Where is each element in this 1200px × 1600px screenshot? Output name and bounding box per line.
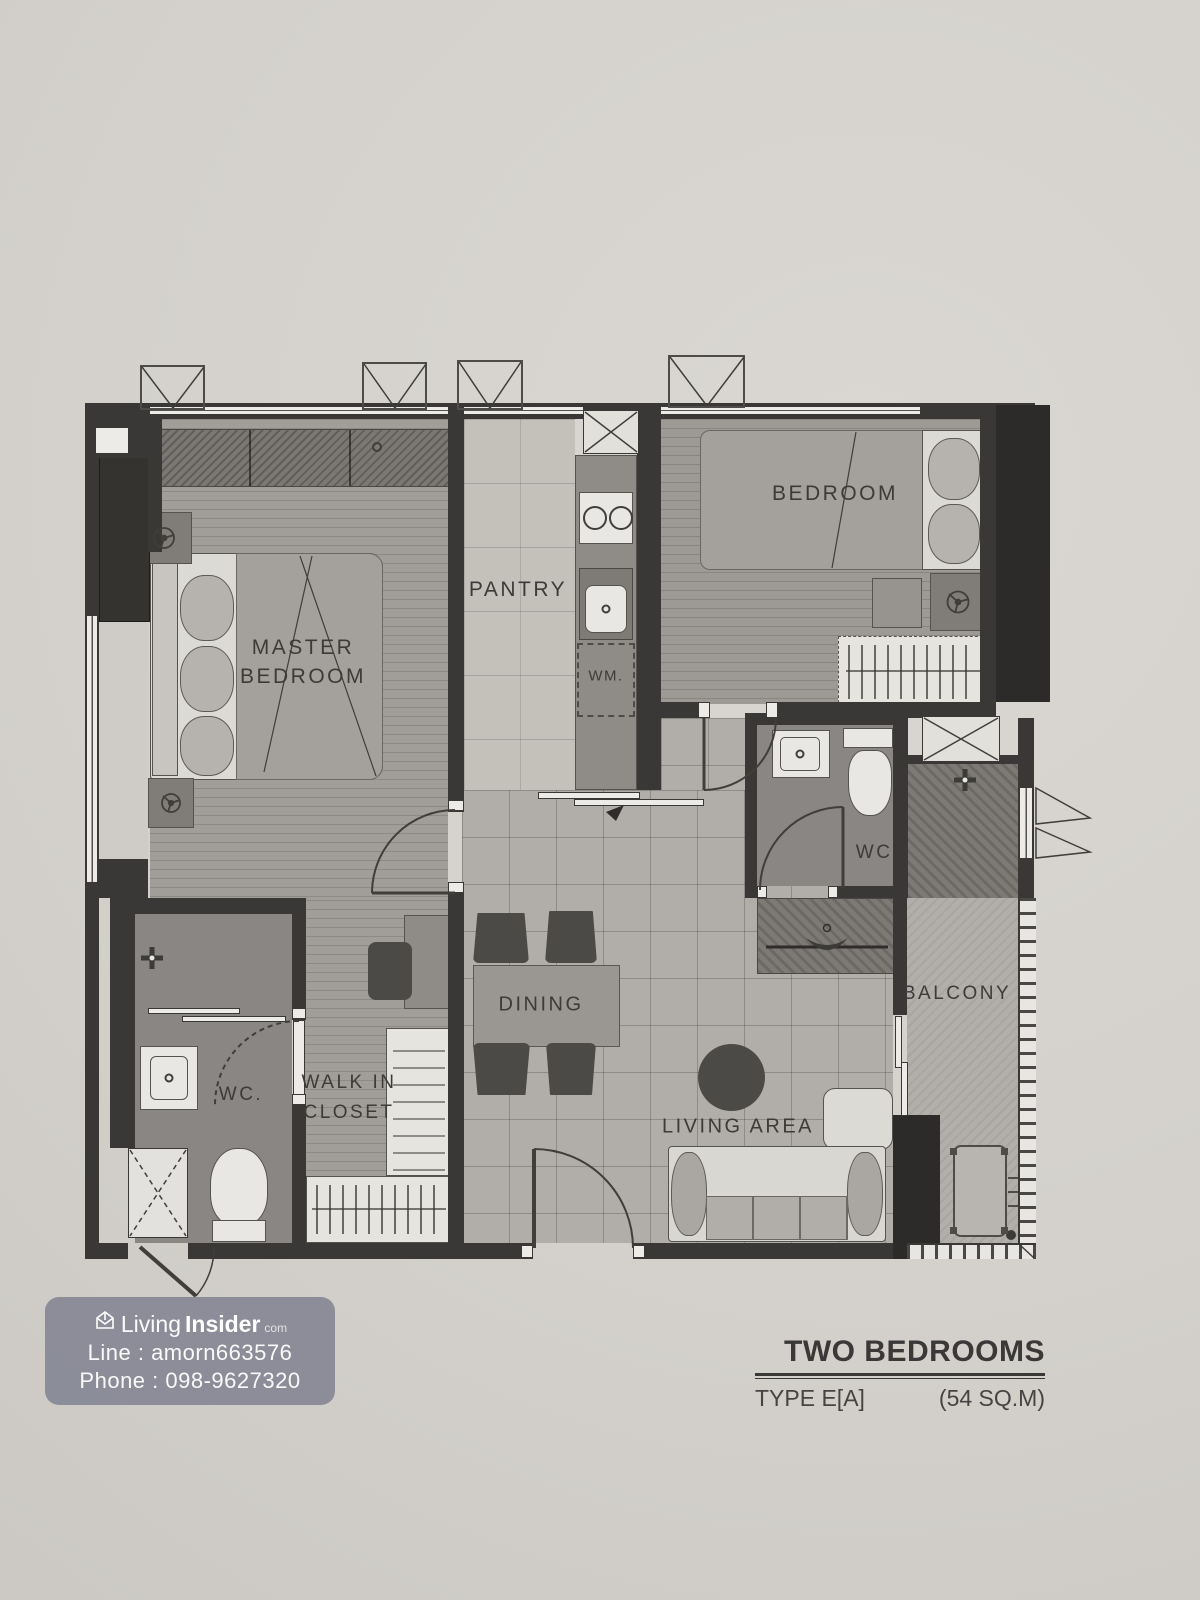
watermark-line-contact: Line : amorn663576 [88, 1340, 293, 1366]
watermark-brand: LivingInsidercom [93, 1308, 287, 1338]
unit-area: (54 SQ.M) [939, 1385, 1045, 1412]
railing-corner-diagonal [1020, 1245, 1034, 1258]
dining-label: DINING [499, 994, 584, 1017]
duct-x-mark [924, 718, 998, 760]
brand-tld: com [264, 1321, 287, 1335]
casement-v-mark [142, 367, 204, 408]
walk-in-closet-label: WALK IN CLOSET [302, 1068, 397, 1128]
fan-symbol [948, 592, 970, 614]
wardrobe-knob [373, 443, 381, 451]
louver-fins [1036, 788, 1090, 858]
pantry-label: PANTRY [469, 578, 567, 602]
wc-common-label: WC. [856, 842, 900, 864]
ledge-door-leaf [140, 1247, 196, 1296]
title-block: TWO BEDROOMS TYPE E[A] (54 SQ.M) [755, 1335, 1045, 1412]
ledge-x-mark [130, 1150, 186, 1236]
watermark-phone-contact: Phone : 098-9627320 [79, 1368, 300, 1394]
sink-drain [166, 1075, 173, 1082]
watermark-badge: LivingInsidercom Line : amorn663576 Phon… [45, 1297, 335, 1405]
entrance-door-arc [534, 1149, 633, 1248]
brand-living: Living [121, 1311, 181, 1338]
shower-symbol [954, 769, 976, 791]
title-rule-thick [755, 1373, 1045, 1376]
sink-drain [797, 751, 804, 758]
brand-insider: Insider [185, 1311, 260, 1338]
door-swing-arrow [606, 805, 624, 821]
master-bedroom-label: MASTER BEDROOM [240, 633, 366, 691]
casement-v-mark [459, 362, 521, 408]
casement-v-mark [670, 357, 744, 406]
balcony-label: BALCONY [903, 983, 1011, 1005]
tv-symbol [766, 925, 888, 951]
plan-title: TWO BEDROOMS [755, 1335, 1045, 1369]
floor-plan-photo: MASTER BEDROOM PANTRY BEDROOM WM. WC. DI… [0, 0, 1200, 1600]
bedroom-label: BEDROOM [772, 482, 898, 506]
bedroom-door-arc [704, 718, 776, 790]
fan-symbol [154, 528, 174, 548]
wc-master-label: WC. [219, 1084, 263, 1106]
shower-symbol [141, 947, 163, 969]
washing-machine-label: WM. [588, 668, 623, 685]
stove-burner [610, 507, 632, 529]
ledge-door-arc [196, 1247, 214, 1296]
stove-burner [584, 507, 606, 529]
kitchen-sink-drain [603, 606, 610, 613]
living-insider-logo-icon [93, 1308, 117, 1332]
wc-common-door-arc [760, 807, 843, 890]
bench-feet [950, 1148, 1018, 1234]
master-door-arc [372, 810, 455, 893]
casement-v-mark [364, 364, 426, 408]
title-rule-thin [755, 1378, 1045, 1379]
fan-symbol [162, 794, 180, 812]
living-area-label: LIVING AREA [662, 1116, 814, 1139]
duct-x-mark [585, 412, 637, 452]
unit-type: TYPE E[A] [755, 1385, 865, 1412]
